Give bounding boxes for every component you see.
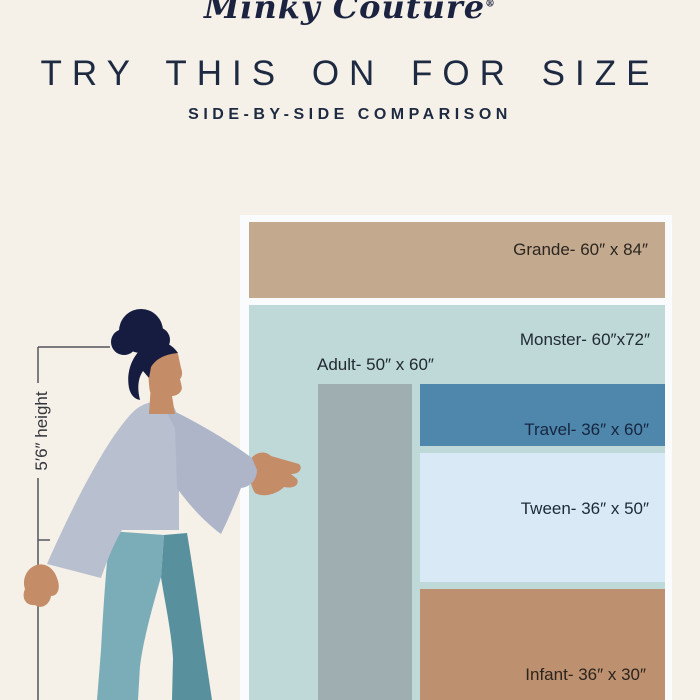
person-trailing-hand bbox=[24, 564, 59, 606]
blanket-grande: Grande- 60″ x 84″ bbox=[249, 222, 665, 298]
person-illustration bbox=[0, 290, 320, 700]
blanket-adult bbox=[318, 384, 412, 700]
person-pointing-hand bbox=[249, 453, 301, 496]
brand-logo: Minky Couture® bbox=[0, 0, 700, 26]
person-hair-bun-left bbox=[111, 329, 137, 355]
brand-name: Minky Couture bbox=[204, 0, 485, 26]
blanket-grande-label: Grande- 60″ x 84″ bbox=[513, 240, 648, 260]
page-subtitle: SIDE-BY-SIDE COMPARISON bbox=[0, 106, 700, 124]
blanket-tween: Tween- 36″ x 50″ bbox=[420, 453, 665, 582]
page-title: TRY THIS ON FOR SIZE bbox=[0, 54, 700, 94]
blanket-monster-label: Monster- 60″x72″ bbox=[520, 330, 650, 350]
registered-mark: ® bbox=[485, 0, 496, 9]
person-back-leg bbox=[161, 533, 212, 700]
blanket-travel: Travel- 36″ x 60″ bbox=[420, 384, 665, 446]
blanket-infant-label: Infant- 36″ x 30″ bbox=[525, 665, 646, 685]
blanket-infant: Infant- 36″ x 30″ bbox=[420, 589, 665, 700]
blanket-travel-label: Travel- 36″ x 60″ bbox=[524, 420, 649, 440]
blanket-tween-label: Tween- 36″ x 50″ bbox=[521, 499, 649, 519]
blanket-adult-label: Adult- 50″ x 60″ bbox=[317, 355, 434, 375]
infographic-page: Minky Couture® TRY THIS ON FOR SIZE SIDE… bbox=[0, 0, 700, 700]
